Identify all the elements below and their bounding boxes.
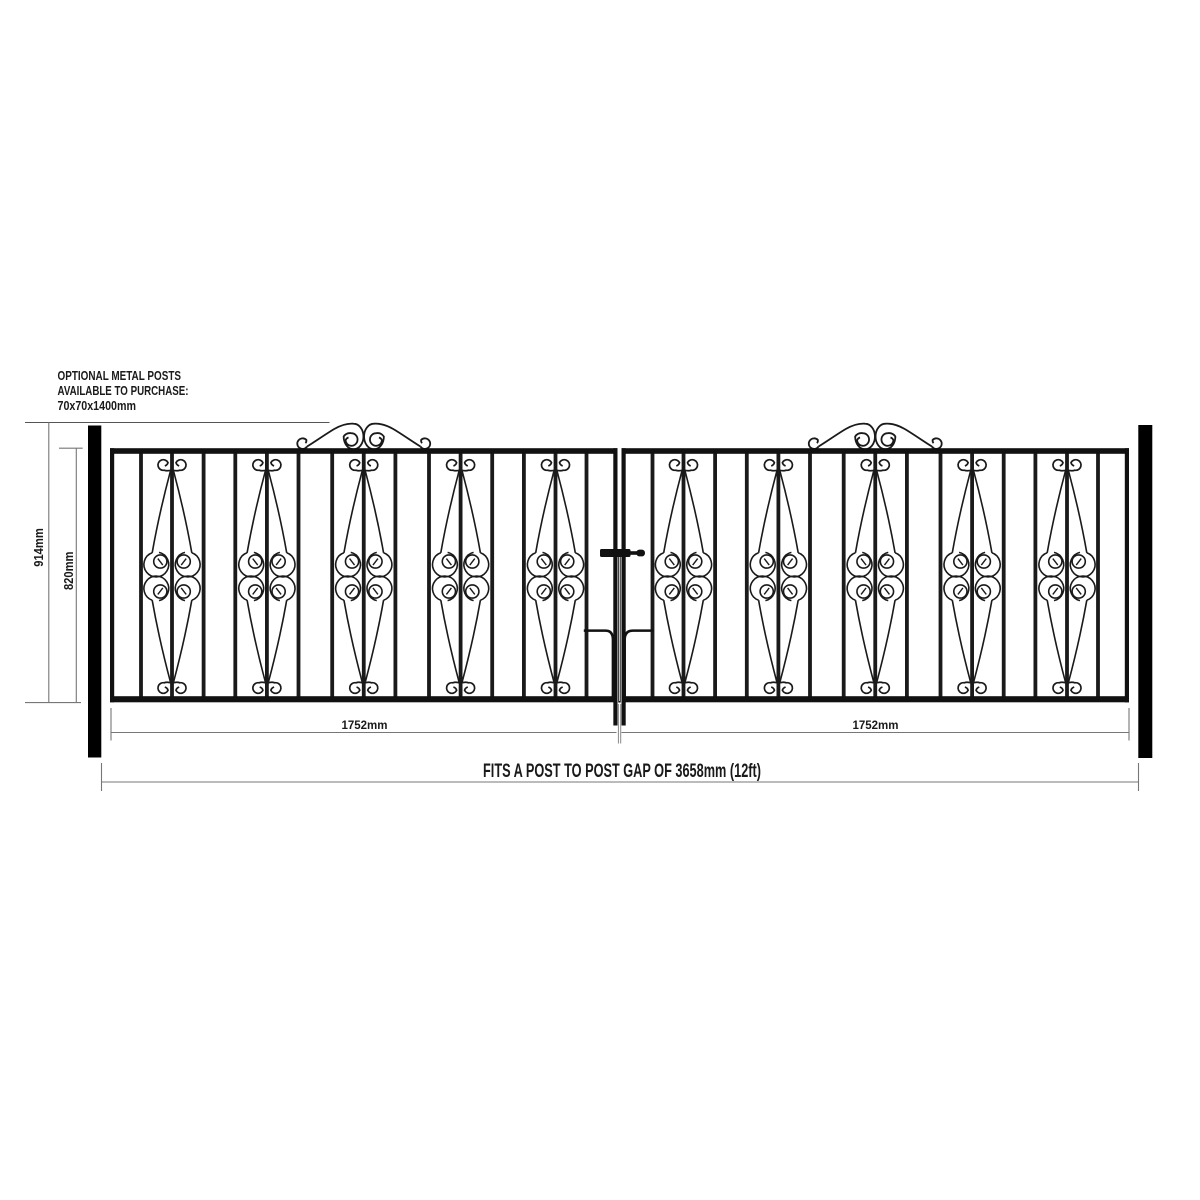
svg-text:914mm: 914mm bbox=[31, 528, 46, 567]
svg-text:70x70x1400mm: 70x70x1400mm bbox=[58, 398, 137, 413]
svg-text:FITS A POST TO POST GAP OF 365: FITS A POST TO POST GAP OF 3658mm (12ft) bbox=[483, 761, 761, 782]
svg-text:OPTIONAL METAL POSTS: OPTIONAL METAL POSTS bbox=[58, 368, 182, 383]
svg-text:820mm: 820mm bbox=[61, 552, 76, 591]
svg-text:AVAILABLE TO PURCHASE:: AVAILABLE TO PURCHASE: bbox=[58, 383, 189, 398]
svg-text:1752mm: 1752mm bbox=[852, 720, 898, 732]
svg-text:1752mm: 1752mm bbox=[341, 720, 387, 732]
